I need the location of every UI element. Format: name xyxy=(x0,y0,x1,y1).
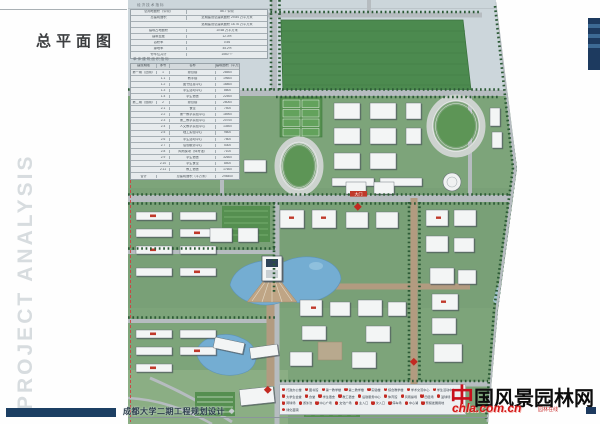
legend-item: 26 预留发展用地 xyxy=(421,400,444,405)
legend-item: 24 停车场 xyxy=(388,400,401,405)
legend-item: 5 实验楼 xyxy=(367,387,380,392)
table-row: 合计 总建筑面积（平方米） 298400 xyxy=(131,173,239,179)
legend-item: 9 大学生会堂 xyxy=(282,393,302,398)
legend-item: 27 绿化苗圃 xyxy=(282,407,299,412)
legend-number-badge: 9 xyxy=(282,394,285,397)
legend-item: 16 田径场 xyxy=(420,393,433,398)
legend-item-label: 后勤服务中心 xyxy=(362,394,381,399)
legend-number-badge: 20 xyxy=(315,401,318,404)
legend-item: 20 中心广场 xyxy=(315,400,332,405)
legend-item: 18 网球场 xyxy=(282,400,295,405)
legend-item: 23 次入口 xyxy=(371,400,384,405)
legend-item-label: 综合教学楼 xyxy=(388,387,403,392)
legend-item: 17 篮球场 xyxy=(437,393,450,398)
legend-number-badge: 17 xyxy=(437,394,440,397)
watermark: 中国风景园林网 chla.com.cn 园林在线 xyxy=(450,377,600,424)
legend-item: 7 学术交流中心 xyxy=(407,387,430,392)
legend-item: 13 后勤服务中心 xyxy=(358,393,381,398)
legend-item: 4 第二教学楼 xyxy=(344,387,364,392)
legend-item-label: 教工宿舍 xyxy=(342,394,354,399)
legend-item-label: 田径场 xyxy=(424,394,433,399)
buildings-table: 建设期限 序号 名称 建筑面积（平方米） 第一期（近期） 1 综合楼 28500… xyxy=(130,63,240,181)
legend-number-badge: 13 xyxy=(358,394,361,397)
watermark-square-icon xyxy=(586,407,596,414)
legend-item-label: 篮球场 xyxy=(441,394,450,399)
legend-item: 3 第一教学楼 xyxy=(322,387,342,392)
title-bar xyxy=(6,408,116,417)
legend-item-label: 停车场 xyxy=(392,400,401,405)
legend-number-badge: 27 xyxy=(282,408,285,411)
legend-number-badge: 18 xyxy=(282,401,285,404)
legend-number-badge: 7 xyxy=(407,388,410,391)
legend-number-badge: 10 xyxy=(305,394,308,397)
legend-number-badge: 6 xyxy=(384,388,387,391)
legend-item-label: 食堂 xyxy=(309,394,315,399)
legend-item: 2 图书馆 xyxy=(305,387,318,392)
legend-item-label: 绿化苗圃 xyxy=(286,407,298,412)
economic-table: 总用地面积（公顷） 86.7 公顷 总建筑面积 近期建设总建筑面积 29.84 … xyxy=(130,9,268,59)
legend-item-label: 学术交流中心 xyxy=(411,387,430,392)
legend-number-badge: 23 xyxy=(371,401,374,404)
legend-number-badge: 24 xyxy=(388,401,391,404)
athletic-track-west xyxy=(278,140,320,192)
header-rule xyxy=(0,9,127,10)
legend-item: 25 中心湖 xyxy=(405,400,418,405)
legend-item-label: 学生宿舍 xyxy=(323,394,335,399)
legend-item-label: 文化广场 xyxy=(339,400,351,405)
map-legend: 1 行政办公楼 2 图书馆 3 第一教学楼 4 第二教学楼 5 实验楼 xyxy=(279,384,466,415)
presentation-board: 大门 总平面图 PROJECT ANALYSIS 经济技术指标 总用地面积（公顷… xyxy=(0,0,600,424)
diamond-ornament: ◆ xyxy=(229,407,234,415)
legend-number-badge: 15 xyxy=(401,394,404,397)
legend-item-label: 网球场 xyxy=(286,400,295,405)
legend-number-badge: 21 xyxy=(335,401,338,404)
legend-item: 12 教工宿舍 xyxy=(338,393,355,398)
svg-text:大门: 大门 xyxy=(355,190,363,196)
tennis-courts xyxy=(280,97,322,137)
legend-number-badge: 16 xyxy=(420,394,423,397)
page-thumbnail xyxy=(588,18,600,70)
legend-item-label: 大学生会堂 xyxy=(286,394,301,399)
legend-number-badge: 22 xyxy=(355,401,358,404)
legend-item: 21 文化广场 xyxy=(335,400,352,405)
legend-item-label: 主入口 xyxy=(359,400,368,405)
legend-item: 14 体育馆 xyxy=(384,393,397,398)
athletic-track-east xyxy=(430,98,482,154)
legend-item-label: 游泳池 xyxy=(303,400,312,405)
legend-number-badge: 8 xyxy=(433,388,436,391)
legend-number-badge: 2 xyxy=(305,388,308,391)
legend-number-badge: 19 xyxy=(299,401,302,404)
legend-item: 19 游泳池 xyxy=(299,400,312,405)
paved-plaza xyxy=(318,342,342,360)
watermark-tagline: 园林在线 xyxy=(538,406,558,413)
legend-item: 10 食堂 xyxy=(305,393,315,398)
legend-number-badge: 11 xyxy=(318,394,321,397)
economic-table-title: 经济技术指标 xyxy=(137,3,165,8)
legend-number-badge: 26 xyxy=(421,401,424,404)
legend-item-label: 第二教学楼 xyxy=(349,387,364,392)
legend-item: 1 行政办公楼 xyxy=(282,387,302,392)
legend-item-label: 中心广场 xyxy=(320,400,332,405)
main-gate-label: 大门 xyxy=(350,190,367,196)
legend-item: 11 学生宿舍 xyxy=(318,393,335,398)
legend-item-label: 风雨操场 xyxy=(405,394,417,399)
legend-item-label: 第一教学楼 xyxy=(326,387,341,392)
legend-number-badge: 4 xyxy=(344,388,347,391)
buildings-table-body: 第一期（近期） 1 综合楼 28500 1.1 教学楼 19600 1.2 图书… xyxy=(131,70,239,180)
legend-item: 22 主入口 xyxy=(355,400,368,405)
gymnasium-dome xyxy=(443,173,461,191)
page-title: 总平面图 xyxy=(36,30,116,51)
legend-item-label: 预留发展用地 xyxy=(426,400,445,405)
legend-number-badge: 3 xyxy=(322,388,325,391)
legend-number-badge: 12 xyxy=(338,394,341,397)
legend-number-badge: 1 xyxy=(282,388,285,391)
legend-item-label: 实验楼 xyxy=(371,387,380,392)
watermark-domain: chla.com.cn xyxy=(452,401,521,415)
legend-item-label: 次入口 xyxy=(376,400,385,405)
project-name: 成都大学二期工程规划设计 xyxy=(123,406,225,417)
sidebar-vertical-label: PROJECT ANALYSIS xyxy=(14,170,38,410)
legend-number-badge: 14 xyxy=(384,394,387,397)
legend-item-label: 行政办公楼 xyxy=(286,387,301,392)
buildings-table-title: 单体建筑面积指标 xyxy=(133,57,170,62)
legend-number-badge: 5 xyxy=(367,388,370,391)
legend-item: 6 综合教学楼 xyxy=(384,387,404,392)
legend-number-badge: 25 xyxy=(405,401,408,404)
legend-item: 15 风雨操场 xyxy=(401,393,418,398)
legend-item-label: 体育馆 xyxy=(388,394,397,399)
legend-item-label: 图书馆 xyxy=(309,387,318,392)
legend-item-label: 中心湖 xyxy=(409,400,418,405)
